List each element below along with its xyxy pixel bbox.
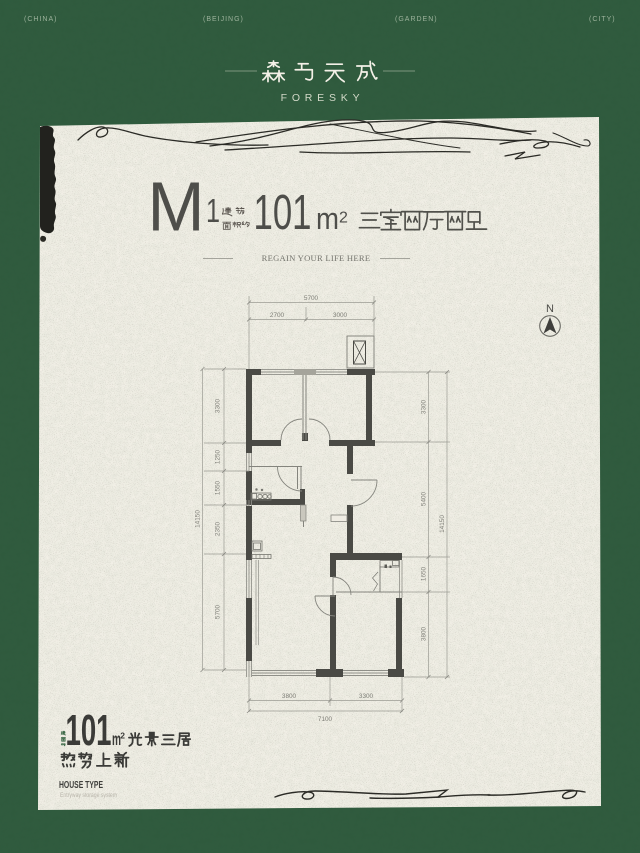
svg-text:1650: 1650: [421, 566, 428, 581]
svg-text:3300: 3300: [421, 399, 428, 414]
svg-text:5700: 5700: [215, 604, 222, 619]
svg-text:HOUSE TYPE: HOUSE TYPE: [59, 780, 103, 791]
svg-text:5400: 5400: [421, 491, 428, 506]
svg-text:1: 1: [206, 192, 220, 229]
svg-text:2700: 2700: [270, 312, 285, 319]
svg-text:Entryway storage system: Entryway storage system: [60, 792, 117, 799]
svg-text:N: N: [546, 303, 554, 315]
svg-text:7100: 7100: [318, 716, 333, 723]
svg-text:14150: 14150: [195, 510, 202, 528]
svg-text:101: 101: [254, 186, 312, 240]
svg-text:2: 2: [339, 210, 348, 227]
svg-text:5700: 5700: [304, 295, 319, 302]
svg-text:1250: 1250: [215, 449, 222, 464]
svg-text:101: 101: [66, 706, 112, 755]
svg-text:3300: 3300: [215, 398, 222, 413]
svg-text:14150: 14150: [439, 515, 446, 533]
svg-text:3800: 3800: [282, 693, 297, 700]
svg-text:3300: 3300: [359, 693, 374, 700]
svg-text:REGAIN YOUR LIFE HERE: REGAIN YOUR LIFE HERE: [262, 253, 371, 263]
svg-text:M: M: [148, 168, 205, 246]
svg-text:1550: 1550: [215, 480, 222, 495]
svg-text:2350: 2350: [215, 521, 222, 536]
svg-text:3800: 3800: [421, 626, 428, 641]
svg-text:2: 2: [120, 731, 125, 741]
svg-text:m: m: [316, 201, 339, 236]
svg-text:3000: 3000: [333, 312, 348, 319]
